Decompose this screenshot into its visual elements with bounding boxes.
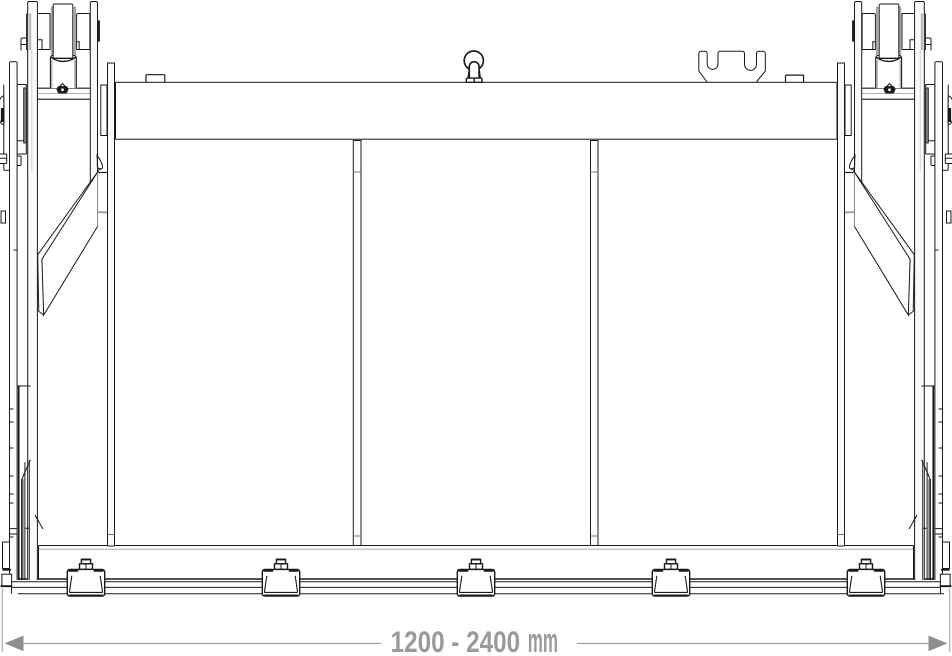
svg-text:mm: mm [528, 622, 558, 656]
svg-text:1200 - 2400: 1200 - 2400 [391, 626, 520, 656]
